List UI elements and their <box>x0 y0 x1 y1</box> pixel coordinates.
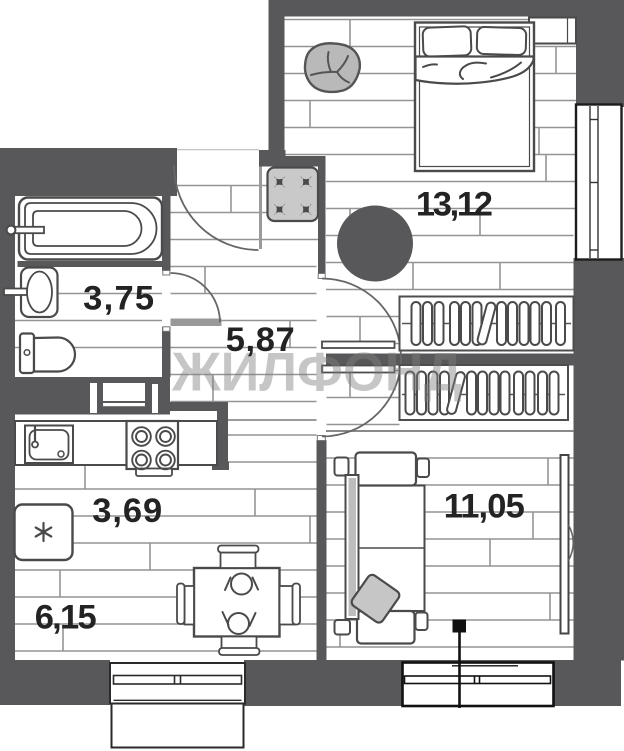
svg-text:13,12: 13,12 <box>416 186 493 224</box>
svg-text:3,75: 3,75 <box>83 280 154 318</box>
svg-text:6,15: 6,15 <box>35 599 97 637</box>
svg-text:ЖИЛФОНД: ЖИЛФОНД <box>171 341 462 403</box>
svg-text:5,87: 5,87 <box>226 321 295 359</box>
svg-text:3,69: 3,69 <box>92 492 162 530</box>
svg-text:11,05: 11,05 <box>444 488 525 526</box>
